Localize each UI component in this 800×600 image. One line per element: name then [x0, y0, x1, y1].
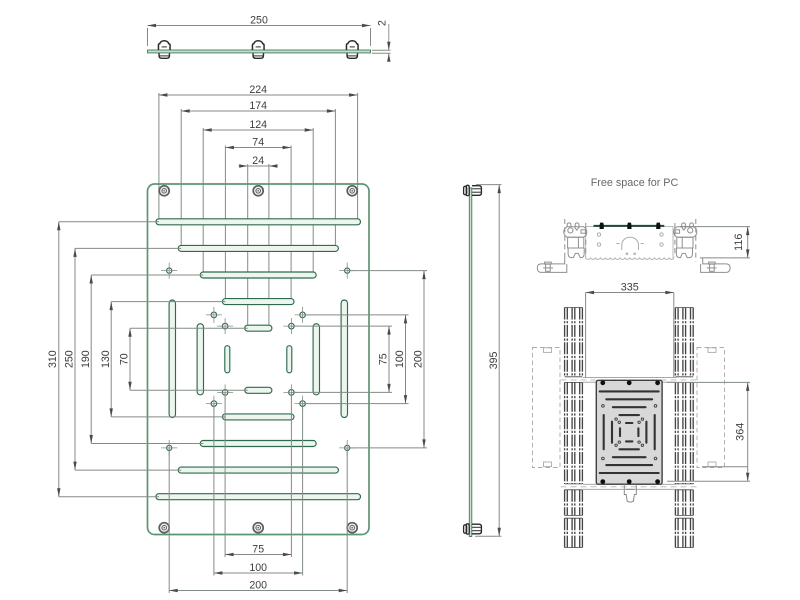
svg-text:100: 100: [249, 562, 267, 574]
svg-text:190: 190: [80, 350, 92, 368]
svg-text:130: 130: [100, 350, 112, 368]
svg-text:Free space for PC: Free space for PC: [591, 177, 679, 189]
svg-text:24: 24: [252, 155, 264, 167]
svg-text:124: 124: [249, 119, 267, 131]
svg-text:310: 310: [47, 350, 59, 368]
svg-text:250: 250: [250, 15, 268, 27]
svg-text:116: 116: [733, 234, 745, 251]
svg-text:200: 200: [413, 350, 425, 368]
svg-text:224: 224: [249, 84, 267, 96]
svg-text:100: 100: [394, 350, 406, 368]
svg-text:250: 250: [64, 350, 76, 368]
svg-text:200: 200: [249, 580, 267, 592]
svg-text:2: 2: [376, 20, 388, 26]
svg-text:75: 75: [378, 353, 390, 365]
svg-text:75: 75: [252, 544, 264, 556]
svg-text:70: 70: [119, 353, 131, 365]
svg-text:364: 364: [735, 423, 747, 441]
svg-text:335: 335: [621, 282, 639, 294]
svg-text:174: 174: [249, 100, 267, 112]
svg-text:74: 74: [252, 137, 264, 149]
svg-text:395: 395: [488, 351, 500, 369]
